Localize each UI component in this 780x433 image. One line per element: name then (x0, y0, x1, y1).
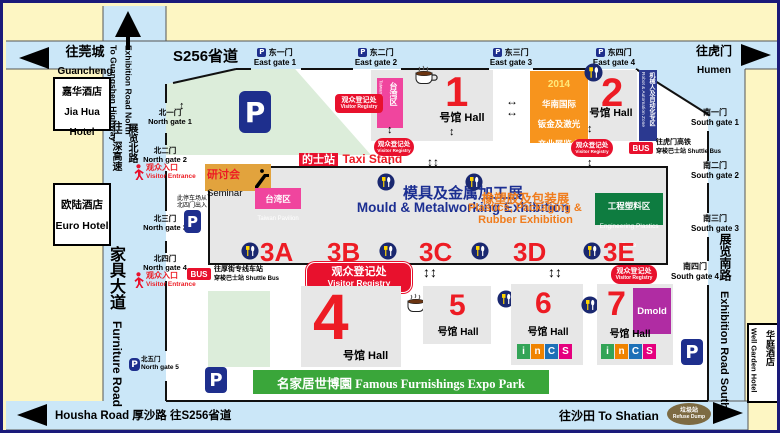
gate-zh: 北一门 (145, 108, 195, 117)
housha-road-label: Housha Road 厚沙路 往S256省道 (55, 407, 231, 423)
gate-en: East gate 3 (477, 58, 545, 68)
parking-icon: P (358, 48, 367, 57)
parking-badge-north5: P (129, 358, 140, 371)
eng-plastics-en1: Engineering Plastics (600, 223, 659, 230)
humen-arrow-icon (741, 44, 771, 66)
visitor-entrance-person-icon (133, 272, 144, 289)
jiahua-zh: 嘉华酒店 (62, 87, 102, 98)
euro-hotel-box: 欧陆酒店 Euro Hotel (53, 183, 111, 246)
exhibition-road-south-en: Exhibition Road South (718, 291, 729, 409)
parking-icon: P (596, 48, 605, 57)
gate-east-1: P 东一门 East gate 1 (241, 48, 309, 68)
show-zh2: 钣金及激光 (538, 119, 581, 129)
robot-zone-zh: 机械人及自动化专区 (648, 72, 654, 126)
logo-tile-n: n (531, 344, 544, 359)
robot-automation-zone-box: Robot & Automation Zone 机械人及自动化专区 (639, 70, 657, 141)
guancheng-en: Guancheng (57, 66, 112, 77)
furniture-road-zh: 家具大道 (107, 246, 123, 310)
humen-en: Humen (697, 65, 731, 76)
hall-1-label: 号馆 Hall (431, 109, 493, 125)
gate-east-3: P 东三门 East gate 3 (477, 48, 545, 68)
bus-houjie-line2: 穿梭巴士站 Shuttle Bus (214, 276, 279, 282)
logo-tile-s: S (559, 344, 572, 359)
guancheng-zh: 往莞城 (65, 44, 104, 59)
restaurant-icon (471, 242, 489, 260)
taiwan-zh: 台湾区 (265, 194, 291, 204)
restaurant-icon (583, 242, 601, 260)
hall-7-label: 号馆 Hall (601, 325, 659, 340)
visitor-registry-tag-top: 观众登记处 Visitor Registry (335, 94, 383, 113)
gate-zh: 南三门 (687, 214, 743, 224)
road-label-s256: S256省道 (173, 45, 238, 66)
gate-en: North gate 1 (145, 117, 195, 126)
imcs-logo: inCS (601, 341, 657, 359)
hall-6-label: 号馆 Hall (519, 323, 577, 338)
taiwan-en: Taiwan Pavilion (257, 216, 298, 222)
visitor-registry-en: Visitor Registry (611, 276, 657, 282)
gate-south-1: 南一门 South gate 1 (687, 108, 743, 128)
furniture-road-en: Furniture Road (111, 321, 123, 407)
logo-tile-i: i (601, 344, 614, 359)
taxi-en: Taxi Stand (342, 152, 402, 166)
coffee-icon (413, 65, 439, 89)
exhibition-center-map: S256省道 往莞城 Guancheng 往虎门 Humen Exhibitio… (0, 0, 780, 433)
hall-2-label: 号馆 Hall (587, 105, 635, 120)
bus-humen-label: 往虎门高铁 穿梭巴士站 Shuttle Bus (656, 138, 722, 157)
shatian-label: 往沙田 To Shatian (559, 407, 659, 424)
humen-label: 往虎门 Humen (687, 42, 741, 77)
visitor-entrance-north-2: 观众入口 Visitor Entrance (146, 163, 202, 181)
well-garden-hotel-box: Well Garden Hotel 华庭酒店 (747, 323, 780, 403)
parking-badge-main: P (239, 91, 271, 133)
hall-1-number: 1 (445, 71, 468, 113)
gate-en: South gate 3 (687, 224, 743, 234)
jiahua-hotel-box: 嘉华酒店 Jia Hua Hotel (53, 77, 111, 131)
plastics-exhibition-en2: Rubber Exhibition (473, 214, 578, 226)
bus-badge-humen: BUS (629, 142, 653, 154)
gate-zh: 北四门 (139, 254, 191, 263)
hall-7-number: 7 (607, 287, 626, 321)
robot-zone-en: Robot & Automation Zone (639, 72, 644, 127)
seminar-zh: 研讨会 (207, 169, 240, 181)
housha-arrow-icon (17, 404, 47, 426)
section-3C: 3C (419, 239, 452, 265)
gate-en: North gate 5 (141, 364, 185, 372)
parking-note-line1: 此停车场从 (177, 196, 207, 202)
logo-tile-c: C (629, 344, 642, 359)
gate-en: South gate 1 (687, 118, 743, 128)
gate-north-2: 北二门 North gate 2 (139, 146, 191, 165)
gate-north-1: 北一门 North gate 1 (145, 108, 195, 127)
guancheng-arrow-icon (19, 47, 49, 69)
logo-tile-n: n (615, 344, 628, 359)
gate-north-5: 北五门 North gate 5 (141, 356, 185, 372)
refuse-dump-badge: 垃圾站 Refuse Dump (667, 403, 711, 425)
north-arrow-icon (115, 11, 141, 37)
parking-badge-north: P (184, 210, 201, 233)
flow-arrow-horizontal: ↔ ↔ (497, 96, 527, 118)
taxi-zh-badge: 的士站 (299, 153, 338, 167)
engineering-plastics-zone-box: 工程塑料区 Engineering Plastics Zone (595, 193, 663, 225)
gate-south-3: 南三门 South gate 3 (687, 214, 743, 234)
gate-zh: 东二门 (370, 48, 394, 57)
visitor-registry-zh: 观众登记处 (571, 142, 613, 149)
visitor-entrance-person-icon (133, 164, 144, 181)
jiahua-en2: Hotel (70, 127, 95, 138)
visitor-entrance-en: Visitor Entrance (146, 281, 202, 289)
restaurant-icon (465, 173, 483, 191)
flow-arrow: ↕ (179, 101, 185, 112)
well-garden-zh: 华庭酒店 (765, 330, 774, 366)
taiwan-pavilion-zh: 台湾区 (389, 82, 397, 106)
gate-east-2: P 东二门 East gate 2 (342, 48, 410, 68)
expo-park-banner: 名家居世博園 Famous Furnishings Expo Park (253, 370, 549, 394)
gate-zh: 东三门 (505, 48, 529, 57)
visitor-registry-en: Visitor Registry (571, 149, 613, 154)
dmold-label: Dmold (637, 306, 667, 317)
imcs-logo: inCS (517, 341, 573, 359)
seminar-en: Seminar (207, 188, 242, 199)
humen-zh: 往虎门 (696, 44, 732, 58)
gate-en: South gate 2 (687, 171, 743, 181)
sheet-metal-laser-show-box: 2014 华南国际 钣金及激光 产业展览会 Sheet Metal & Lase… (530, 71, 588, 143)
restaurant-icon (241, 242, 259, 260)
show-zh1: 华南国际 (542, 99, 576, 109)
gate-zh: 东一门 (269, 48, 293, 57)
h-arrow: ↔ (497, 107, 527, 118)
gate-north-4: 北四门 North gate 4 (139, 254, 191, 273)
hall-5-number: 5 (449, 291, 466, 321)
euro-zh: 欧陆酒店 (61, 199, 103, 211)
parking-note-line2: 北四门出入 (177, 203, 207, 209)
visitor-registry-oval-hall2: 观众登记处 Visitor Registry (571, 139, 613, 157)
flow-arrow-pair: ↕↕ (548, 265, 562, 279)
flow-arrow: ↕ (587, 124, 593, 135)
visitor-registry-zh: 观众登记处 (374, 141, 414, 148)
escalator-icon (253, 167, 270, 188)
restaurant-icon (377, 173, 395, 191)
flow-arrow-pair: ↕↕ (423, 265, 437, 279)
gate-south-4: 南四门 South gate 4 (667, 262, 723, 282)
hall-4-label: 号馆 Hall (343, 347, 388, 363)
plastics-exhibition-en1: Plastics, Packaging & (461, 202, 589, 214)
flow-arrow: ↕ (449, 127, 455, 138)
expo-park-label: 名家居世博園 Famous Furnishings Expo Park (277, 373, 525, 392)
exhibition-road-north-zh: 展览北路 (126, 123, 136, 163)
well-garden-en: Well Garden Hotel (750, 328, 758, 392)
visitor-entrance-zh: 观众入口 (146, 163, 202, 173)
seminar-box: 研讨会 Seminar (205, 164, 271, 191)
gate-zh: 东四门 (608, 48, 632, 57)
hall-5-label: 号馆 Hall (429, 323, 487, 338)
bus-humen-line2: 穿梭巴士站 Shuttle Bus (656, 149, 721, 155)
section-3D: 3D (513, 239, 546, 265)
gate-zh: 北五门 (141, 356, 185, 364)
gate-zh: 南四门 (667, 262, 723, 272)
bus-houjie-label: 往厚街专线车站 穿梭巴士站 Shuttle Bus (214, 265, 304, 284)
flow-arrow: ↕ (387, 125, 393, 136)
jiahua-en1: Jia Hua (64, 107, 100, 118)
parking-badge-southwest: P (205, 367, 227, 393)
restaurant-icon (379, 242, 397, 260)
guancheng-label: 往莞城 Guancheng (53, 43, 117, 78)
gate-zh: 南一门 (687, 108, 743, 118)
parking-area-west (208, 291, 270, 367)
gate-zh: 南二门 (687, 161, 743, 171)
parking-icon: P (493, 48, 502, 57)
bus-badge-houjie: BUS (187, 268, 211, 280)
exhibition-road-north-en: Exhibition Road North (124, 45, 133, 135)
taiwan-pavilion-box: 台湾区 Taiwan Pavilion (255, 188, 301, 209)
logo-tile-s: S (643, 344, 656, 359)
bus-houjie-line1: 往厚街专线车站 (214, 266, 263, 273)
visitor-registry-en: Visitor Registry (335, 105, 383, 111)
refuse-en: Refuse Dump (667, 415, 711, 421)
section-3A: 3A (260, 239, 293, 265)
visitor-entrance-en: Visitor Entrance (146, 173, 202, 181)
gate-en: East gate 2 (342, 58, 410, 68)
logo-tile-i: i (517, 344, 530, 359)
shatian-arrow-icon (713, 402, 743, 424)
to-guangshen-highway-zh: 往广深高速 (110, 121, 120, 171)
gate-south-2: 南二门 South gate 2 (687, 161, 743, 181)
eng-plastics-zh: 工程塑料区 (608, 201, 651, 211)
section-3E: 3E (603, 239, 635, 265)
visitor-registry-oval-hall7: 观众登记处 Visitor Registry (611, 265, 657, 284)
show-year: 2014 (548, 79, 570, 90)
gate-en: East gate 1 (241, 58, 309, 68)
euro-en: Euro Hotel (55, 220, 108, 232)
bus-humen-line1: 往虎门高铁 (656, 139, 691, 146)
logo-tile-c: C (545, 344, 558, 359)
hall-4-number: 4 (313, 285, 349, 349)
parking-badge-southeast: P (681, 339, 703, 365)
hall-6-number: 6 (535, 289, 552, 319)
parking-icon: P (257, 48, 266, 57)
gate-en: South gate 4 (667, 272, 723, 282)
gate-zh: 北二门 (139, 146, 191, 155)
